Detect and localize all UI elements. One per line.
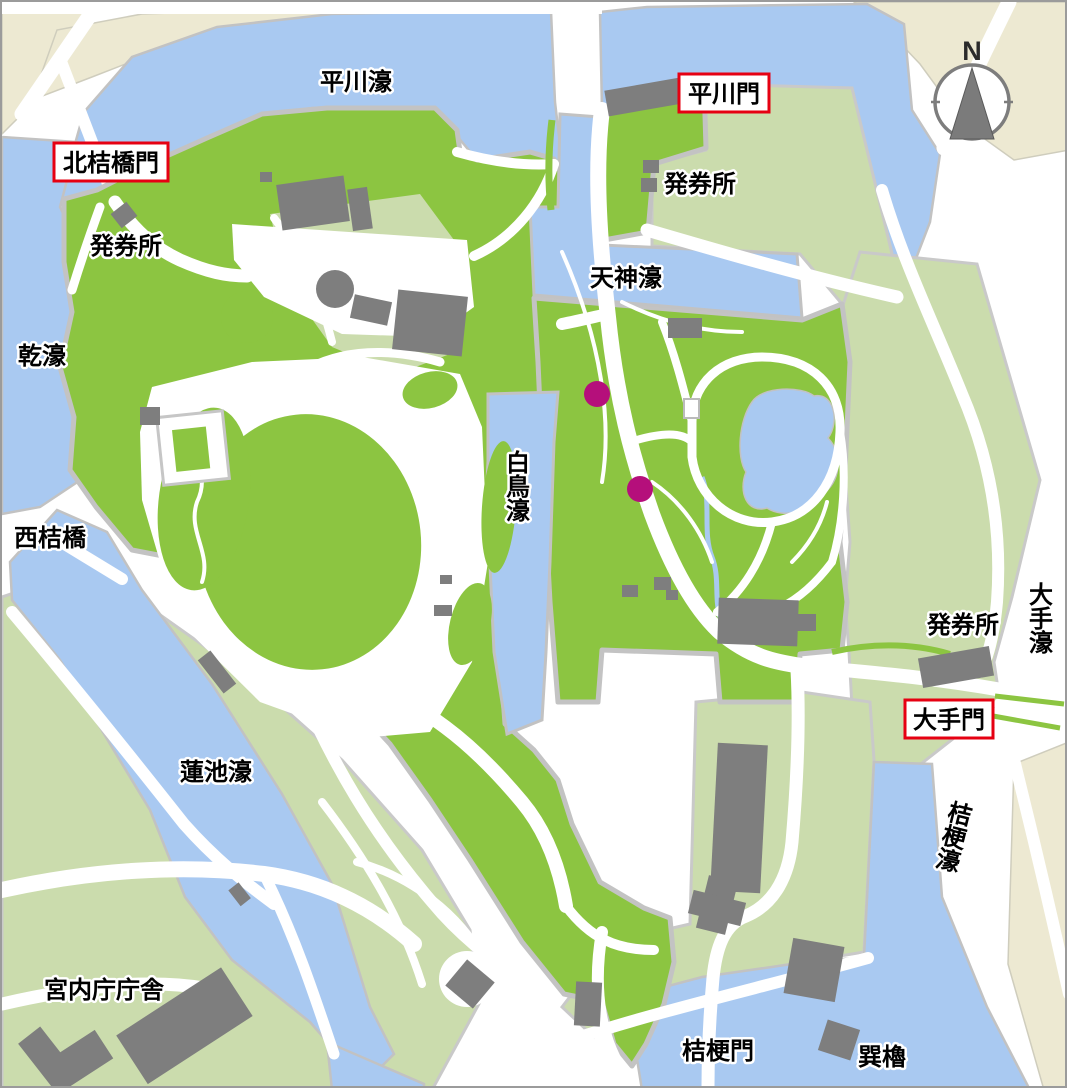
hyakunin-bansho <box>710 743 768 893</box>
kitahanebashi-gate-box: 北桔橋門 <box>54 143 168 181</box>
label-hakucho-moat: 白鳥濠 <box>502 449 530 522</box>
ote-gate-box: 大手門 <box>905 700 993 738</box>
label-kitahanebashi-gate: 北桔橋門 <box>63 150 159 177</box>
label-ticket-office-ne: 発券所 <box>663 170 736 198</box>
o-bansho <box>784 938 845 1002</box>
marker-dot-2 <box>627 476 653 502</box>
label-hirakawa-moat: 平川濠 <box>320 68 392 96</box>
label-hasuike-moat: 蓮池濠 <box>180 758 252 786</box>
imperial-palace-east-gardens-map: N 平川濠 発券所 発券所 天神濠 乾濠 西桔橋 蓮池濠 宮内庁庁舎 桔梗門 巽… <box>2 2 1067 1088</box>
stone-courtyard <box>157 411 230 486</box>
label-hirakawa-gate: 平川門 <box>688 81 760 108</box>
label-ticket-office-se: 発券所 <box>926 611 999 639</box>
garden-resthouse <box>717 598 799 647</box>
label-tatsumi-yagura: 巽櫓 <box>858 1043 906 1071</box>
hirakawa-gate-box: 平川門 <box>679 74 769 112</box>
compass-north-label: N <box>962 36 982 66</box>
label-ticket-office-nw: 発券所 <box>89 232 162 260</box>
marker-dot-1 <box>584 381 610 407</box>
label-nishihanebashi: 西桔橋 <box>14 525 87 552</box>
map-frame: N 平川濠 発券所 発券所 天神濠 乾濠 西桔橋 蓮池濠 宮内庁庁舎 桔梗門 巽… <box>0 0 1067 1088</box>
label-inui-moat: 乾濠 <box>18 342 66 370</box>
label-ote-moat: 大手濠 <box>1025 582 1053 654</box>
garden-shelter <box>668 318 702 338</box>
label-kikyo-gate: 桔梗門 <box>682 1038 754 1065</box>
ticket-office-ne-building <box>643 160 659 173</box>
label-tenjin-moat: 天神濠 <box>590 264 662 292</box>
label-ote-gate: 大手門 <box>913 706 985 734</box>
white-shed <box>684 399 699 418</box>
label-kunaicho: 宮内庁庁舎 <box>44 976 165 1004</box>
